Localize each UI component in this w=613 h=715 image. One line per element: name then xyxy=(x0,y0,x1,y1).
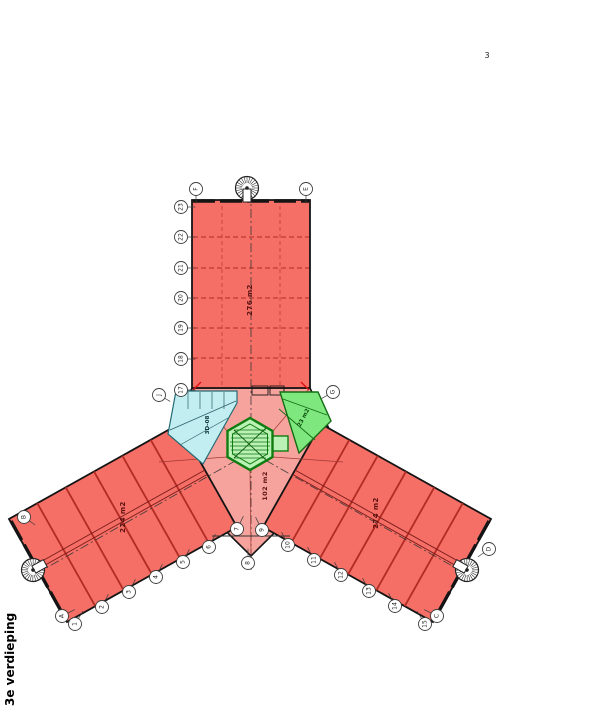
svg-text:15: 15 xyxy=(422,620,429,628)
svg-text:22: 22 xyxy=(178,233,185,241)
svg-text:12: 12 xyxy=(338,571,345,579)
svg-text:19: 19 xyxy=(178,324,185,332)
svg-text:G: G xyxy=(330,389,337,394)
grid-bubble: G xyxy=(322,386,340,399)
floorplan-page: FE23222120191817JGBDA1234567891011121314… xyxy=(0,0,613,715)
svg-text:23: 23 xyxy=(178,203,185,211)
area-label-court: 102 m2 xyxy=(261,471,269,501)
svg-text:8: 8 xyxy=(245,561,252,565)
svg-text:7: 7 xyxy=(234,527,241,531)
svg-text:5: 5 xyxy=(180,560,187,564)
svg-text:14: 14 xyxy=(392,602,399,610)
svg-text:D: D xyxy=(486,546,493,551)
svg-text:B: B xyxy=(21,515,28,519)
spiral-stair-north-icon xyxy=(236,177,259,203)
svg-text:E: E xyxy=(303,187,310,191)
svg-text:18: 18 xyxy=(178,355,185,363)
area-label-north-wing: 276 m2 xyxy=(246,284,254,316)
svg-text:20: 20 xyxy=(178,294,185,302)
svg-text:11: 11 xyxy=(311,556,318,564)
floorplan-drawing: FE23222120191817JGBDA1234567891011121314… xyxy=(0,0,613,715)
area-label-west-wing: 224 m2 xyxy=(119,501,127,533)
svg-text:F: F xyxy=(193,187,200,191)
svg-text:3: 3 xyxy=(126,590,133,594)
svg-text:21: 21 xyxy=(178,264,185,272)
svg-text:9: 9 xyxy=(259,528,266,532)
svg-text:17: 17 xyxy=(178,386,185,394)
floor-title: 3e verdieping xyxy=(3,613,17,706)
svg-text:10: 10 xyxy=(285,541,292,549)
svg-text:13: 13 xyxy=(366,587,373,595)
area-label-sanitary: 3D-08 xyxy=(205,416,211,435)
svg-text:J: J xyxy=(156,394,163,397)
svg-text:1: 1 xyxy=(72,622,79,626)
area-label-east-wing: 274 m2 xyxy=(372,497,380,529)
grid-bubble: D xyxy=(478,543,496,558)
svg-text:C: C xyxy=(434,614,441,618)
svg-text:2: 2 xyxy=(99,605,106,609)
svg-text:4: 4 xyxy=(153,575,160,579)
grid-bubble: J xyxy=(153,389,171,402)
svg-text:6: 6 xyxy=(206,545,213,549)
page-number: 3 xyxy=(484,51,489,60)
